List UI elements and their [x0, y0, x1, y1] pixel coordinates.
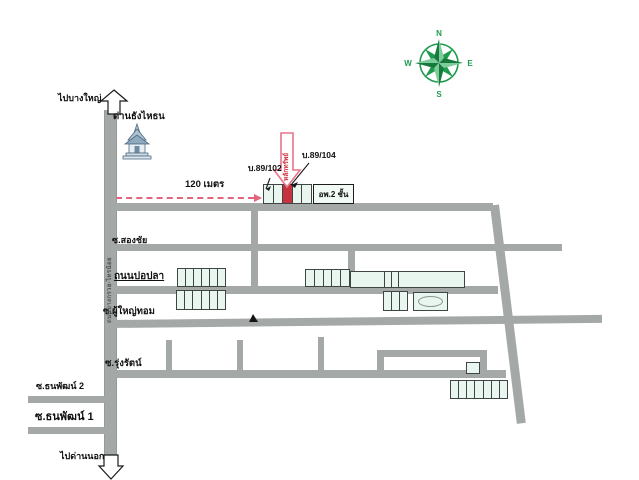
road-loop-top	[377, 350, 487, 357]
building-unit	[210, 269, 218, 286]
building-unit	[178, 269, 186, 286]
building-block-c	[383, 291, 408, 311]
main-road-name-label: ถนนบางกรวย-ไทรน้อย	[104, 257, 114, 323]
building-block-oval	[413, 292, 448, 311]
road-soi-thanaphat2	[28, 396, 112, 403]
road-popla-label: ถนนปอปลา	[114, 271, 164, 282]
to-south-label: ไปด่านนอก	[60, 452, 104, 462]
building-row-b	[305, 269, 350, 287]
building-unit	[451, 381, 459, 398]
building-row-a-bottom	[176, 290, 226, 310]
building-unit	[459, 381, 467, 398]
soi-songchai-label: ซ.สองชัย	[112, 236, 147, 246]
building-unit	[500, 381, 507, 398]
distance-dashed-line	[116, 197, 254, 199]
building-row-a-top	[177, 268, 226, 287]
to-north-label: ไปบางใหญ่	[58, 94, 101, 104]
house-104-label: บ.89/104	[302, 151, 336, 160]
building-unit	[492, 381, 500, 398]
road-soi-thanaphat1	[28, 427, 112, 434]
building-unit	[467, 381, 475, 398]
map-canvas: N E S W อพ.2 ชั้น หลักทรัพย์ ไปบางใหญ่ ด…	[0, 0, 639, 480]
building-unit	[202, 269, 210, 286]
long-building	[350, 271, 465, 288]
building-unit	[202, 291, 210, 309]
temple-label: ด่านธังไหธน	[113, 112, 165, 122]
road-stub-1	[166, 340, 172, 373]
building-unit	[177, 291, 185, 309]
building-unit	[306, 270, 315, 286]
loop-small-building	[466, 362, 480, 374]
soi-thanaphat2-label: ซ.ธนพัฒน์ 2	[36, 382, 84, 392]
building-unit	[475, 381, 483, 398]
building-unit	[186, 269, 194, 286]
building-unit	[341, 270, 349, 286]
road-loop-right	[480, 350, 487, 377]
building-unit	[484, 381, 492, 398]
road-soi-phuyaitom	[110, 315, 602, 328]
triangle-marker-icon	[249, 314, 258, 322]
road-loop-left	[377, 350, 384, 373]
compass-e-label: E	[467, 59, 473, 68]
compass-w-label: W	[404, 59, 412, 68]
temple-icon	[120, 124, 154, 160]
road-stub-2	[237, 340, 243, 373]
road-stub-3	[318, 337, 324, 373]
building-unit	[392, 292, 400, 310]
compass-rose-icon: N E S W	[404, 28, 474, 98]
building-unit	[384, 292, 392, 310]
building-unit	[194, 269, 202, 286]
soi-rungrat-label: ซ.รุ่งรัตน์	[105, 359, 142, 369]
building-unit	[210, 291, 218, 309]
distance-label: 120 เมตร	[185, 180, 224, 190]
building-unit	[315, 270, 324, 286]
bottom-townhouse-row	[450, 380, 508, 399]
soi-thanaphat1-label: ซ.ธนพัฒน์ 1	[35, 411, 94, 423]
house-102-label: บ.89/102	[248, 164, 282, 173]
building-unit	[332, 270, 341, 286]
road-connector-1	[251, 207, 258, 291]
building-unit	[218, 269, 225, 286]
building-unit	[185, 291, 193, 309]
building-unit	[400, 292, 407, 310]
compass-s-label: S	[436, 90, 442, 99]
building-unit	[324, 270, 333, 286]
road-soi-property	[110, 203, 493, 211]
oval-mark	[418, 296, 443, 307]
building-unit	[193, 291, 201, 309]
compass-n-label: N	[436, 29, 442, 38]
building-unit	[218, 291, 225, 309]
